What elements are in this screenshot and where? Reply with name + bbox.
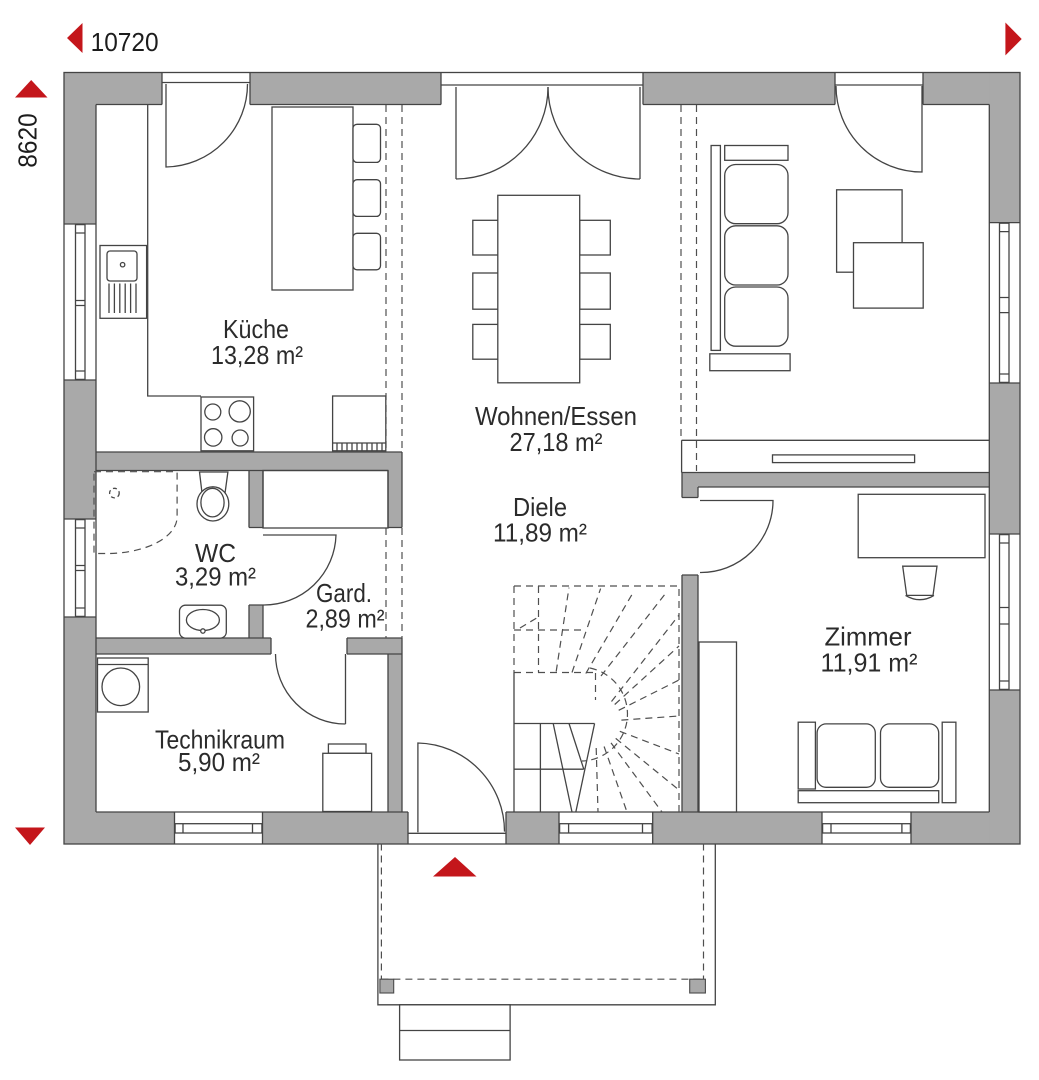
svg-text:8620: 8620 [13,113,43,168]
svg-text:5,90 m²: 5,90 m² [178,747,260,777]
svg-text:3,29 m²: 3,29 m² [175,562,256,592]
svg-text:27,18 m²: 27,18 m² [510,427,603,457]
svg-text:10720: 10720 [91,27,159,57]
svg-text:11,91 m²: 11,91 m² [821,648,918,678]
svg-text:2,89 m²: 2,89 m² [306,604,385,634]
svg-text:11,89 m²: 11,89 m² [493,518,587,548]
svg-text:13,28 m²: 13,28 m² [211,340,303,370]
